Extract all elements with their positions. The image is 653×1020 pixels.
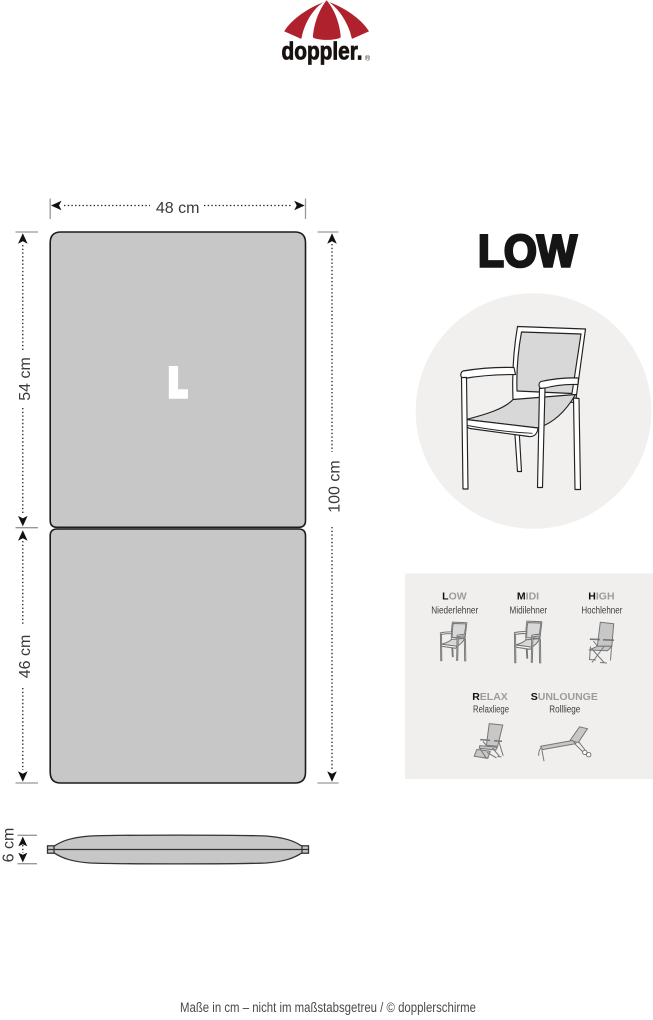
svg-text:Hochlehner: Hochlehner bbox=[581, 606, 623, 617]
svg-text:46 cm: 46 cm bbox=[17, 635, 34, 679]
svg-text:Rollliege: Rollliege bbox=[549, 705, 580, 716]
svg-text:Midilehner: Midilehner bbox=[510, 606, 548, 617]
svg-text:54 cm: 54 cm bbox=[17, 357, 34, 401]
svg-text:doppler.: doppler. bbox=[282, 38, 363, 66]
svg-text:Relaxliege: Relaxliege bbox=[473, 705, 509, 716]
svg-text:Maße in cm – nicht im maßstabs: Maße in cm – nicht im maßstabsgetreu / ©… bbox=[180, 1000, 476, 1015]
svg-text:RELAX: RELAX bbox=[472, 691, 508, 703]
svg-text:HIGH: HIGH bbox=[588, 591, 614, 603]
svg-text:®: ® bbox=[365, 55, 371, 63]
svg-text:LOW: LOW bbox=[442, 591, 467, 603]
svg-text:6 cm: 6 cm bbox=[1, 828, 18, 863]
svg-text:LOW: LOW bbox=[478, 226, 577, 277]
svg-text:SUNLOUNGE: SUNLOUNGE bbox=[531, 691, 598, 703]
svg-text:MIDI: MIDI bbox=[517, 591, 539, 603]
svg-text:48 cm: 48 cm bbox=[156, 200, 200, 217]
svg-text:100 cm: 100 cm bbox=[327, 460, 344, 512]
svg-text:Niederlehner: Niederlehner bbox=[431, 606, 479, 617]
